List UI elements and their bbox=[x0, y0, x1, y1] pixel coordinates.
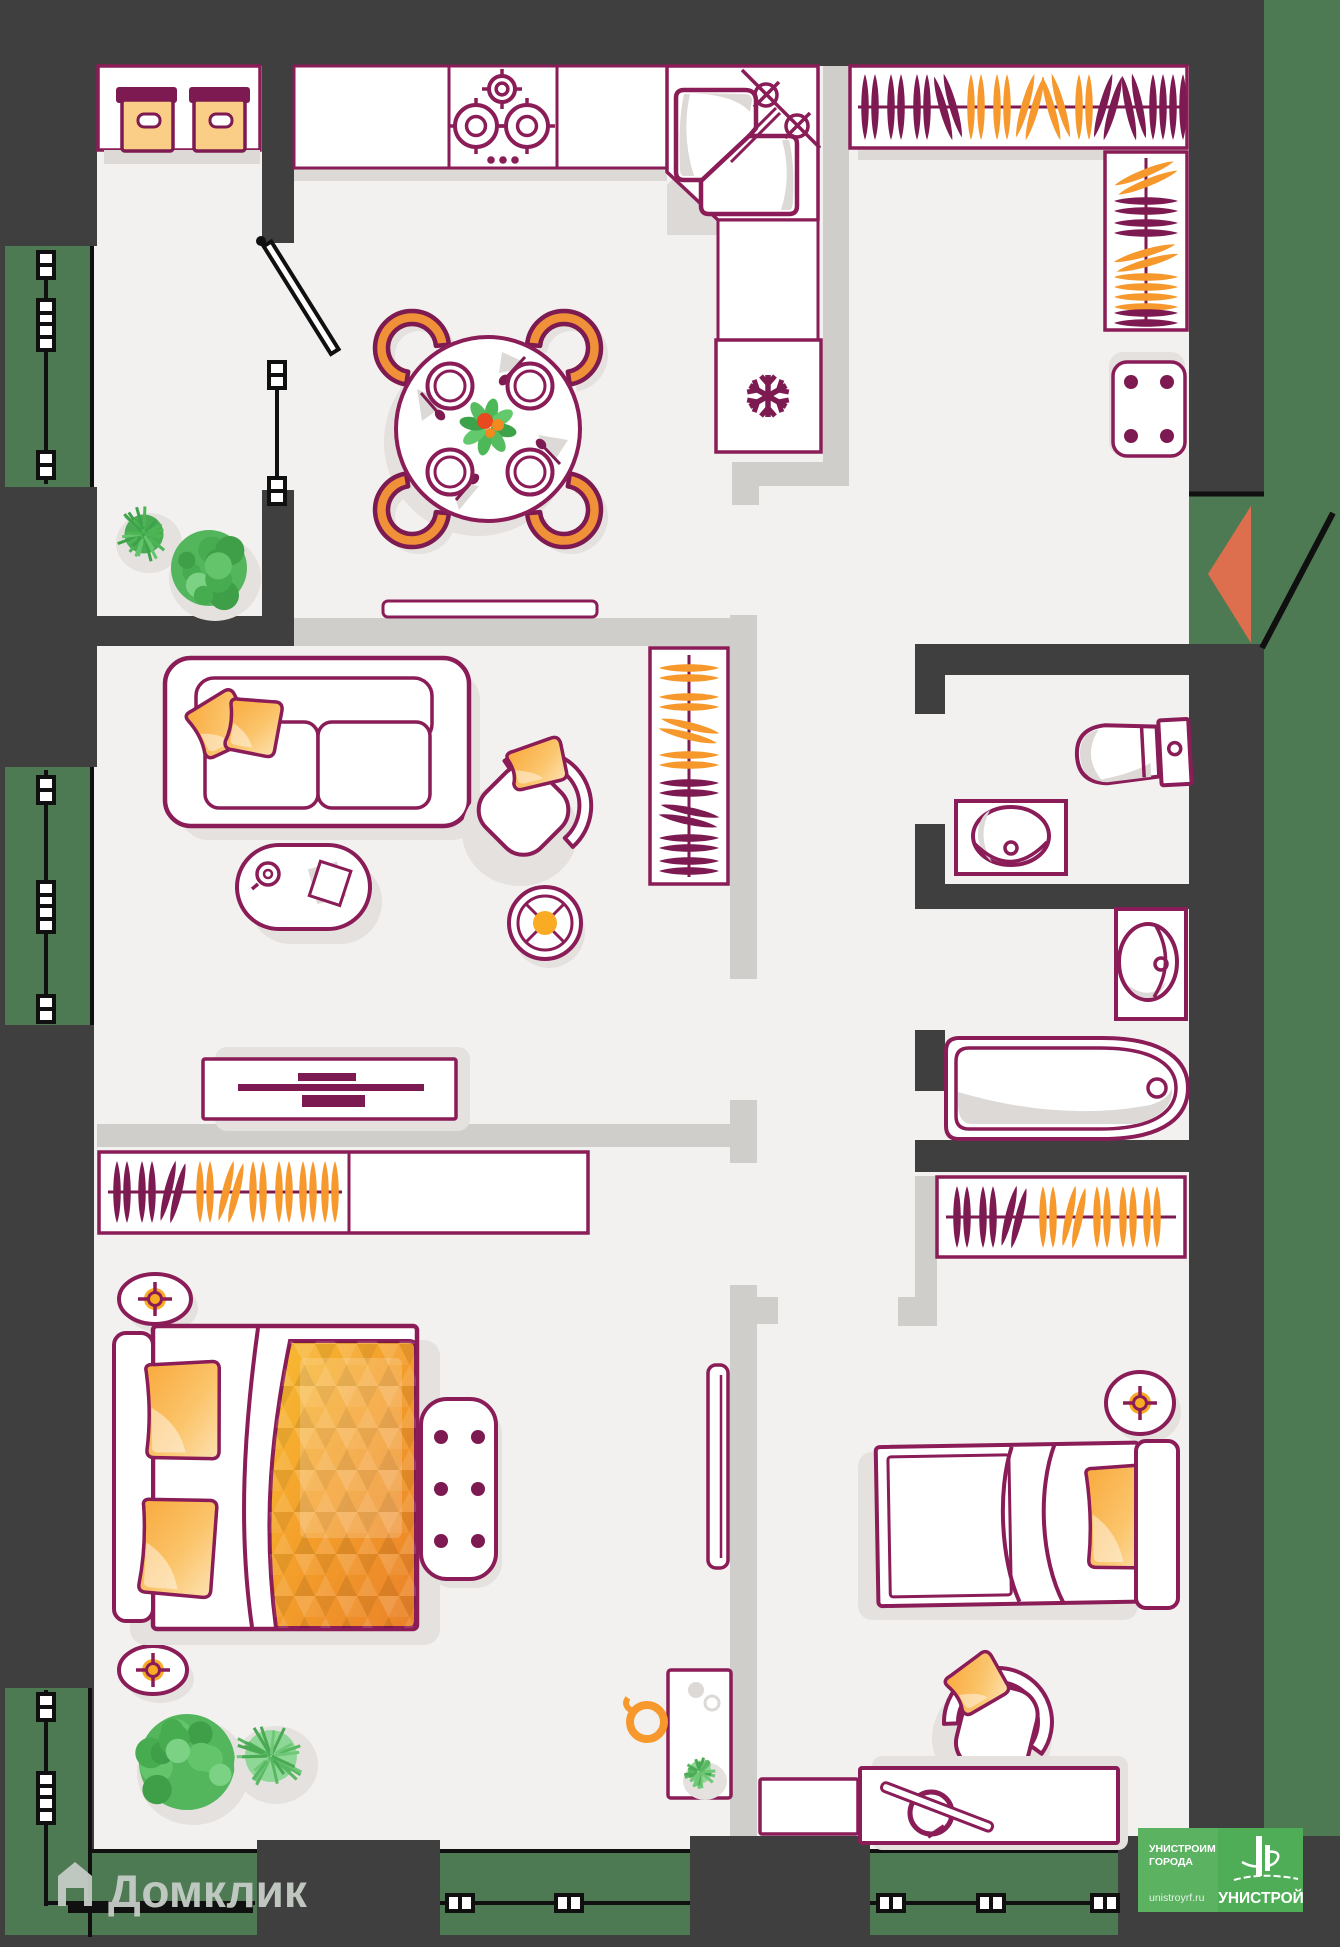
svg-text:ГОРОДА: ГОРОДА bbox=[1149, 1856, 1193, 1868]
svg-text:Домклик: Домклик bbox=[108, 1865, 308, 1917]
svg-text:УНИСТРОЙ: УНИСТРОЙ bbox=[1218, 1889, 1304, 1907]
svg-text:unistroyrf.ru: unistroyrf.ru bbox=[1149, 1892, 1205, 1904]
svg-text:УНИСТРОИМ: УНИСТРОИМ bbox=[1149, 1843, 1216, 1855]
